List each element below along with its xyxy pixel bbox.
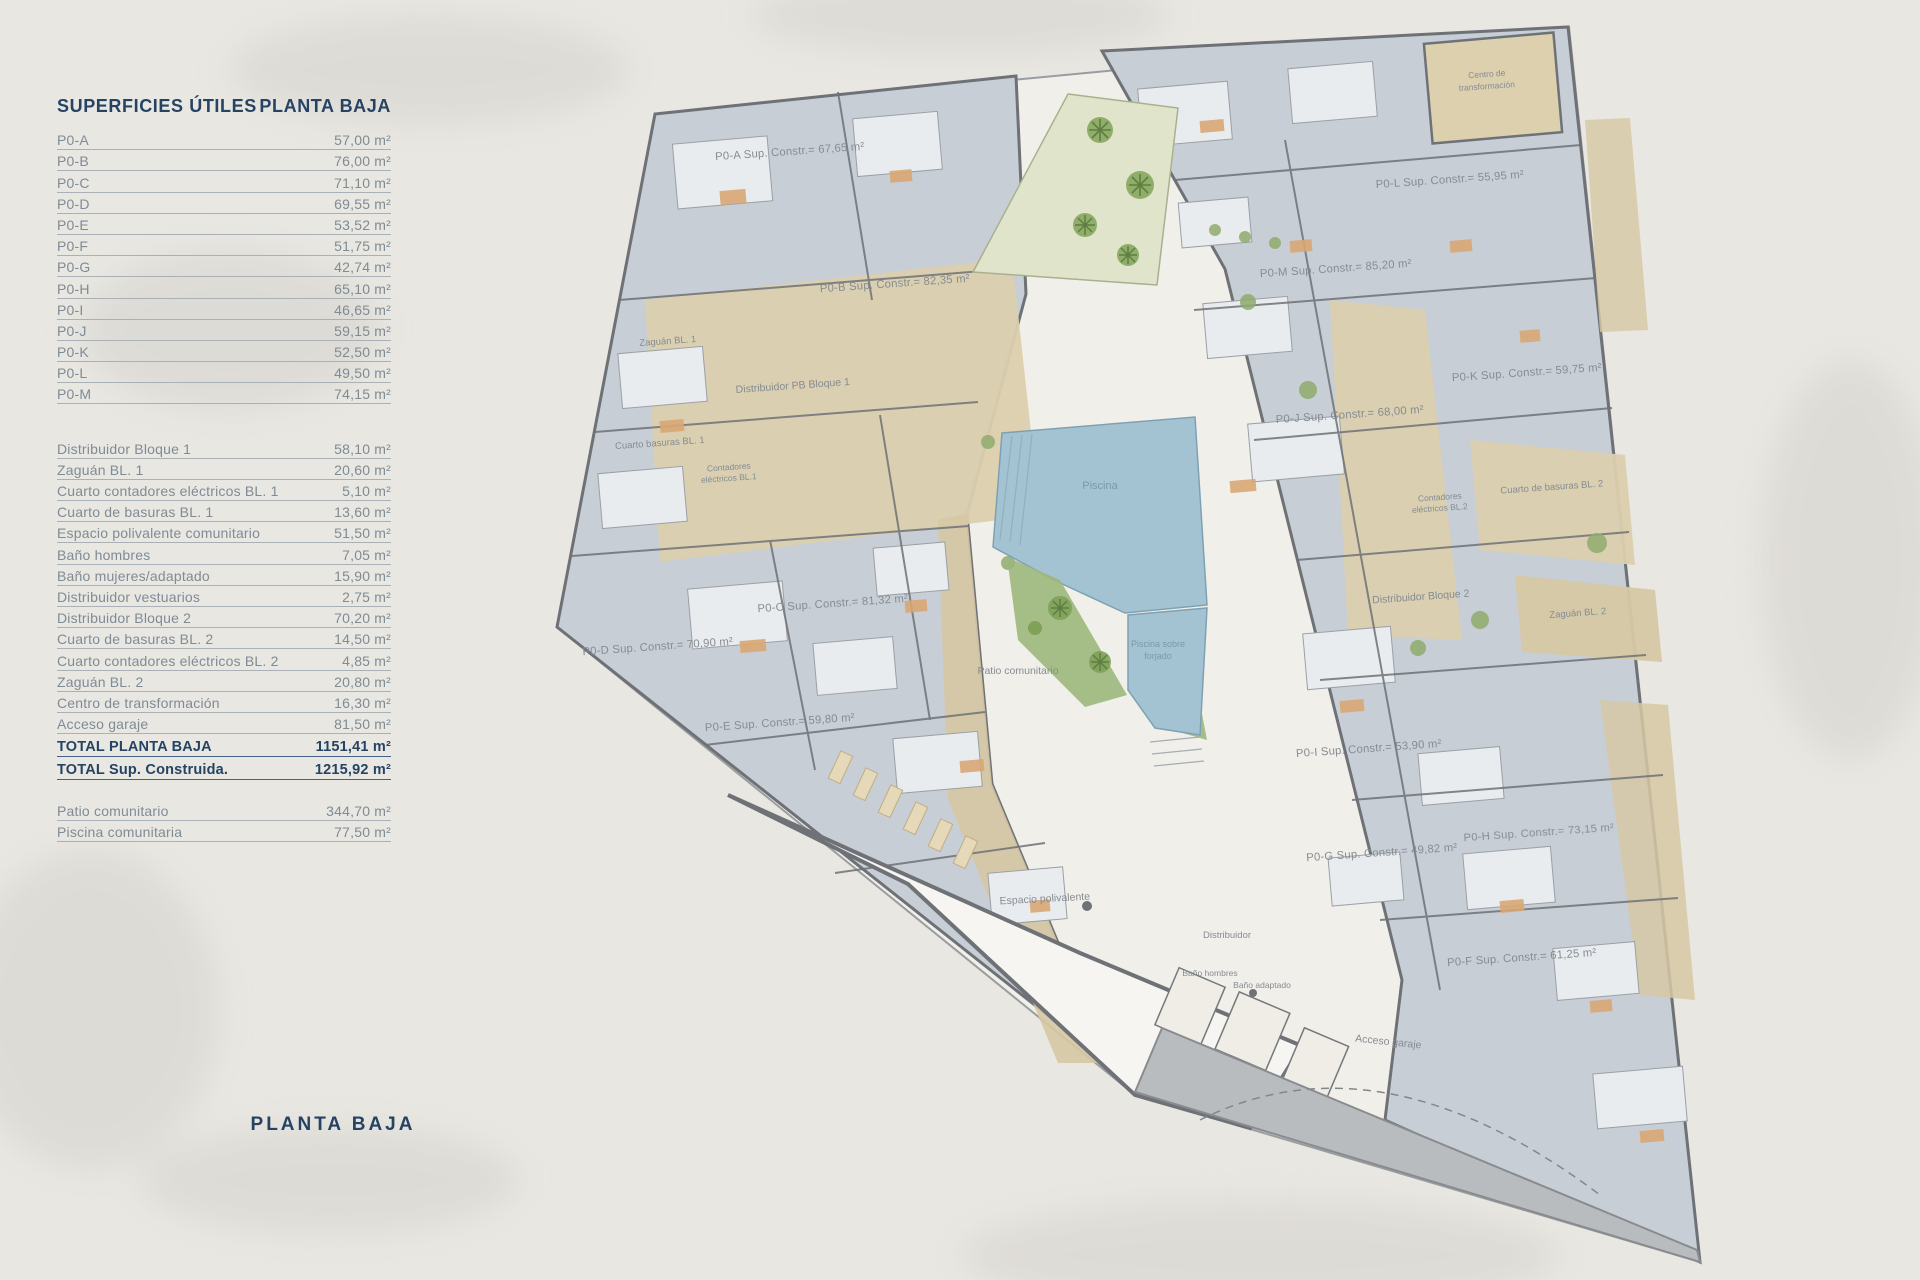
outdoor-rows: Patio comunitario 344,70 m² Piscina comu… [57, 800, 391, 842]
plan-label-bano-hombres: Baño hombres [1182, 968, 1237, 978]
table-row: Patio comunitario 344,70 m² [57, 800, 391, 821]
row-value: 7,05 m² [342, 546, 391, 564]
plan-caption: PLANTA BAJA [248, 1114, 418, 1136]
row-value: 59,15 m² [334, 322, 391, 340]
row-value: 20,80 m² [334, 673, 391, 691]
table-row: P0-D 69,55 m² [57, 193, 391, 214]
row-label: P0-H [57, 280, 90, 298]
row-value: 69,55 m² [334, 195, 391, 213]
row-label: P0-F [57, 237, 88, 255]
row-label: P0-J [57, 322, 87, 340]
row-label: Centro de transformación [57, 694, 220, 712]
table-row: Centro de transformación 16,30 m² [57, 692, 391, 713]
row-label: TOTAL Sup. Construida. [57, 761, 228, 779]
row-value: 42,74 m² [334, 258, 391, 276]
table-row: P0-J 59,15 m² [57, 320, 391, 341]
row-label: P0-E [57, 216, 89, 234]
row-label: Espacio polivalente comunitario [57, 524, 260, 542]
row-value: 74,15 m² [334, 385, 391, 403]
row-value: 14,50 m² [334, 630, 391, 648]
table-row: Acceso garaje 81,50 m² [57, 713, 391, 734]
row-label: P0-M [57, 385, 91, 403]
row-label: Zaguán BL. 2 [57, 673, 143, 691]
table-row: Cuarto contadores eléctricos BL. 2 4,85 … [57, 649, 391, 670]
row-value: 46,65 m² [334, 301, 391, 319]
row-value: 52,50 m² [334, 343, 391, 361]
surfaces-table-header: SUPERFICIES ÚTILES PLANTA BAJA [57, 96, 391, 117]
row-value: 344,70 m² [326, 802, 391, 820]
row-label: Piscina comunitaria [57, 823, 182, 841]
row-value: 1151,41 m² [316, 738, 391, 756]
row-value: 1215,92 m² [315, 761, 391, 779]
plan-label-bano-adaptado: Baño adaptado [1233, 980, 1291, 990]
units-rows: P0-A 57,00 m² P0-B 76,00 m² P0-C 71,10 m… [57, 129, 391, 404]
row-label: P0-B [57, 152, 89, 170]
table-row: P0-C 71,10 m² [57, 171, 391, 192]
table-title-left: SUPERFICIES ÚTILES [57, 96, 257, 117]
row-label: Cuarto contadores eléctricos BL. 2 [57, 652, 279, 670]
row-value: 20,60 m² [334, 461, 391, 479]
table-row: Espacio polivalente comunitario 51,50 m² [57, 522, 391, 543]
row-value: 51,75 m² [334, 237, 391, 255]
row-label: P0-K [57, 343, 89, 361]
table-gap [57, 404, 391, 437]
table-gap [57, 780, 391, 800]
row-value: 2,75 m² [342, 588, 391, 606]
table-row: Cuarto contadores eléctricos BL. 1 5,10 … [57, 480, 391, 501]
table-row: P0-F 51,75 m² [57, 235, 391, 256]
table-row: P0-M 74,15 m² [57, 383, 391, 404]
table-row: Zaguán BL. 2 20,80 m² [57, 671, 391, 692]
plan-label-piscina-forjado-l2: forjado [1144, 651, 1172, 661]
table-row: Distribuidor Bloque 2 70,20 m² [57, 607, 391, 628]
row-value: 4,85 m² [342, 652, 391, 670]
table-row: P0-H 65,10 m² [57, 277, 391, 298]
table-row: P0-E 53,52 m² [57, 214, 391, 235]
row-label: Baño mujeres/adaptado [57, 567, 210, 585]
row-value: 81,50 m² [334, 715, 391, 733]
row-label: Zaguán BL. 1 [57, 461, 143, 479]
row-value: 58,10 m² [334, 440, 391, 458]
plan-label-piscina: Piscina [1082, 480, 1118, 492]
row-label: P0-C [57, 174, 90, 192]
table-row: Distribuidor Bloque 1 58,10 m² [57, 437, 391, 458]
row-label: Patio comunitario [57, 802, 169, 820]
row-value: 49,50 m² [334, 364, 391, 382]
total-row: TOTAL Sup. Construida. 1215,92 m² [57, 757, 391, 780]
row-label: Cuarto de basuras BL. 1 [57, 503, 213, 521]
table-row: Baño hombres 7,05 m² [57, 543, 391, 564]
plan-label-distribuidor-pb: Distribuidor [1203, 930, 1251, 941]
row-label: P0-L [57, 364, 87, 382]
row-label: P0-G [57, 258, 90, 276]
table-row: Baño mujeres/adaptado 15,90 m² [57, 565, 391, 586]
row-value: 57,00 m² [334, 131, 391, 149]
row-label: P0-D [57, 195, 90, 213]
row-value: 15,90 m² [334, 567, 391, 585]
row-label: P0-A [57, 131, 89, 149]
row-label: Baño hombres [57, 546, 150, 564]
row-label: P0-I [57, 301, 83, 319]
row-label: Cuarto contadores eléctricos BL. 1 [57, 482, 279, 500]
row-label: TOTAL PLANTA BAJA [57, 738, 212, 756]
row-label: Distribuidor Bloque 2 [57, 609, 191, 627]
row-label: Distribuidor Bloque 1 [57, 440, 191, 458]
row-value: 65,10 m² [334, 280, 391, 298]
table-row: Cuarto de basuras BL. 1 13,60 m² [57, 501, 391, 522]
row-label: Cuarto de basuras BL. 2 [57, 630, 213, 648]
row-value: 51,50 m² [334, 524, 391, 542]
table-row: Piscina comunitaria 77,50 m² [57, 821, 391, 842]
table-row: Cuarto de basuras BL. 2 14,50 m² [57, 628, 391, 649]
row-value: 77,50 m² [334, 823, 391, 841]
row-value: 70,20 m² [334, 609, 391, 627]
commons-rows: Distribuidor Bloque 1 58,10 m² Zaguán BL… [57, 437, 391, 734]
row-label: Acceso garaje [57, 715, 148, 733]
total-row: TOTAL PLANTA BAJA 1151,41 m² [57, 734, 391, 757]
totals-rows: TOTAL PLANTA BAJA 1151,41 m² TOTAL Sup. … [57, 734, 391, 780]
table-row: P0-G 42,74 m² [57, 256, 391, 277]
row-value: 16,30 m² [334, 694, 391, 712]
row-value: 5,10 m² [342, 482, 391, 500]
table-row: P0-L 49,50 m² [57, 362, 391, 383]
row-value: 76,00 m² [334, 152, 391, 170]
table-title-right: PLANTA BAJA [259, 96, 391, 117]
surfaces-table: SUPERFICIES ÚTILES PLANTA BAJA P0-A 57,0… [57, 96, 391, 842]
table-row: P0-K 52,50 m² [57, 341, 391, 362]
plan-label-patio: Patio comunitario [977, 665, 1058, 677]
table-row: P0-A 57,00 m² [57, 129, 391, 150]
page: P0-A Sup. Constr.= 67,65 m² P0-B Sup. Co… [0, 0, 1920, 1280]
table-row: Distribuidor vestuarios 2,75 m² [57, 586, 391, 607]
row-value: 71,10 m² [334, 174, 391, 192]
plan-label-piscina-forjado-l1: Piscina sobre [1131, 639, 1185, 649]
table-row: Zaguán BL. 1 20,60 m² [57, 459, 391, 480]
row-value: 53,52 m² [334, 216, 391, 234]
row-value: 13,60 m² [334, 503, 391, 521]
table-row: P0-B 76,00 m² [57, 150, 391, 171]
row-label: Distribuidor vestuarios [57, 588, 200, 606]
table-row: P0-I 46,65 m² [57, 299, 391, 320]
